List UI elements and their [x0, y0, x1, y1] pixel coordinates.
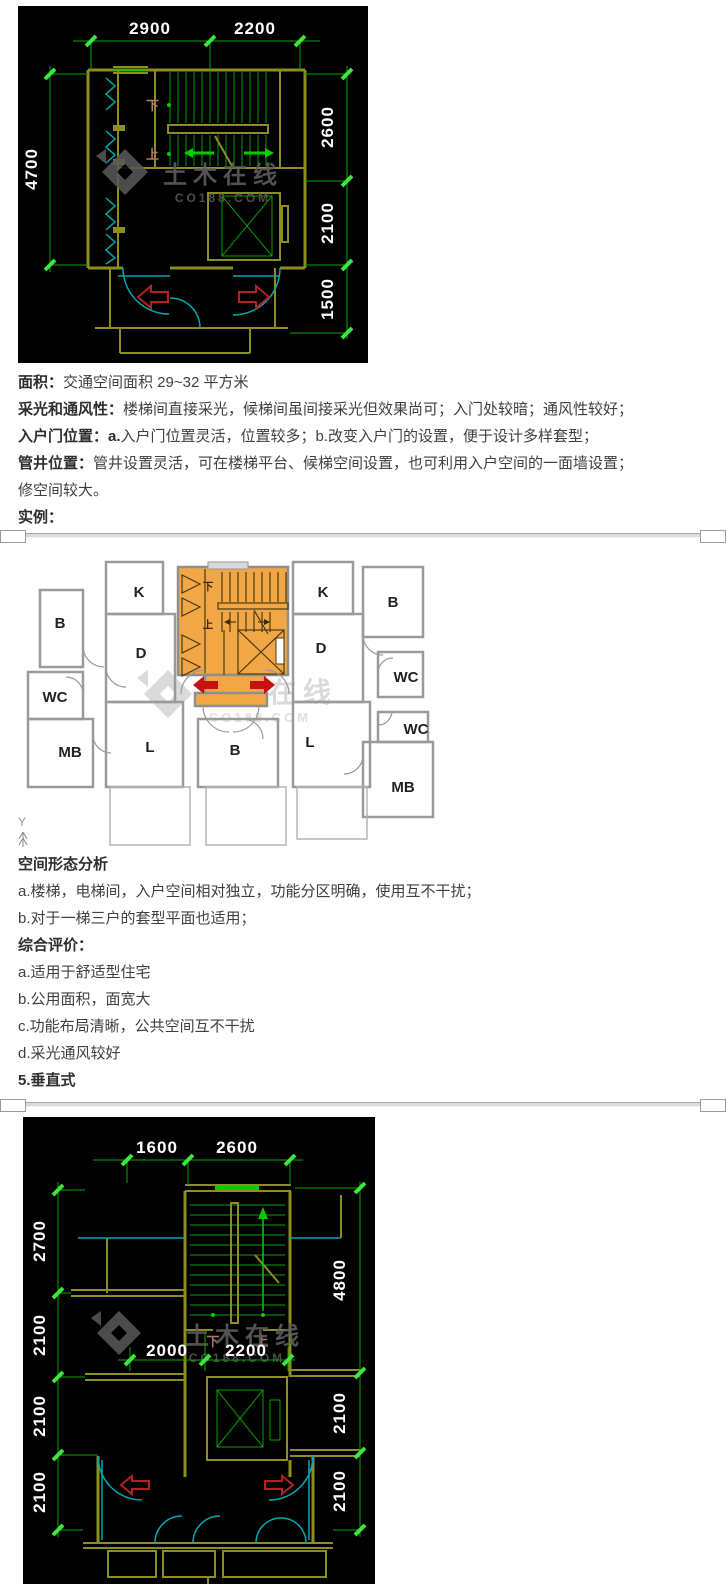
dim-label: 2200 [234, 19, 276, 38]
analysis-item: b.对于一梯三户的套型平面也适用； [18, 905, 720, 932]
dim-label: 2100 [30, 1471, 49, 1513]
evaluation-item: d.采光通风较好 [18, 1040, 720, 1067]
trait-line: 管井位置：管井设置灵活，可在楼梯平台、候梯空间设置，也可利用入户空间的一面墙设置… [18, 450, 720, 477]
dim-label: 2600 [216, 1138, 258, 1157]
divider [0, 529, 726, 542]
next-type-heading: 5.垂直式 [18, 1067, 720, 1094]
dim-label: 2100 [330, 1392, 349, 1434]
room-label: L [145, 739, 154, 756]
trait-text: 入户门位置灵活，位置较多；b.改变入户门的设置，便于设计多样套型； [121, 428, 599, 445]
room-label: WC [43, 689, 68, 706]
trait-line: 修空间较大。 [18, 477, 720, 504]
room-label: MB [58, 744, 81, 761]
axis-label: Y [18, 815, 26, 829]
watermark-domain: CO188.COM [175, 191, 271, 205]
evaluation-item: c.功能布局清晰，公共空间互不干扰 [18, 1013, 720, 1040]
dim-label: 2100 [30, 1314, 49, 1356]
dim-label: 4700 [22, 148, 41, 190]
room-label: B [55, 615, 66, 632]
trait-text: 楼梯间直接采光，候梯间虽间接采光但效果尚可；入门处较暗；通风性较好； [123, 401, 633, 418]
trait-line: 入户门位置：a.入户门位置灵活，位置较多；b.改变入户门的设置，便于设计多样套型… [18, 423, 720, 450]
stair-down-label: 下 [146, 98, 159, 113]
dim-label: 2600 [318, 106, 337, 148]
trait-line: 实例： [18, 504, 720, 531]
divider-handle-left [0, 1099, 26, 1112]
room-label: K [134, 584, 145, 601]
trait-label: 采光和通风性： [18, 401, 123, 418]
watermark-domain: CO188.COM [209, 710, 311, 725]
divider [0, 1098, 726, 1111]
trait-text: 修空间较大。 [18, 482, 108, 499]
analysis-section: 空间形态分析 a.楼梯，电梯间，入户空间相对独立，功能分区明确，使用互不干扰； … [18, 851, 720, 1094]
traits-section: 面积：交通空间面积 29~32 平方米 采光和通风性：楼梯间直接采光，候梯间虽间… [18, 369, 720, 531]
room-label: WC [394, 669, 419, 686]
stair-up-label: 上 [146, 147, 159, 162]
room-label: D [316, 640, 327, 657]
dim-label: 2000 [146, 1341, 188, 1360]
dim-label: 2100 [318, 202, 337, 244]
room-label: D [136, 645, 147, 662]
dim-label: 2200 [225, 1341, 267, 1360]
dim-label: 1500 [318, 278, 337, 320]
room-label: WC [404, 721, 429, 738]
trait-label: 面积： [18, 374, 63, 391]
evaluation-item: a.适用于舒适型住宅 [18, 959, 720, 986]
trait-line: 面积：交通空间面积 29~32 平方米 [18, 369, 720, 396]
dim-label: 1600 [136, 1138, 178, 1157]
dim-label: 2900 [129, 19, 171, 38]
room-label: L [305, 734, 314, 751]
room-label: B [388, 594, 399, 611]
example-floor-plan: 土木在线 CO188.COM 下 上 [10, 542, 482, 854]
divider-rule [0, 533, 726, 538]
axis-marker: Y [18, 815, 27, 847]
cad-plan-top: 下 上 土木在线 CO188.COM 2900 2200 [18, 6, 368, 363]
dim-label: 2100 [30, 1395, 49, 1437]
dim-label: 2700 [30, 1220, 49, 1262]
watermark-title: 土木在线 [163, 161, 283, 189]
trait-label: 入户门位置：a. [18, 428, 121, 445]
evaluation-heading: 综合评价： [18, 932, 720, 959]
trait-text: 管井设置灵活，可在楼梯平台、候梯空间设置，也可利用入户空间的一面墙设置； [93, 455, 633, 472]
trait-text: 交通空间面积 29~32 平方米 [63, 374, 248, 391]
next-type-number: 5. [18, 1072, 31, 1089]
divider-rule [0, 1102, 726, 1107]
evaluation-item: b.公用面积，面宽大 [18, 986, 720, 1013]
dim-label: 2100 [330, 1470, 349, 1512]
next-type-title: 垂直式 [31, 1072, 76, 1089]
trait-label: 实例： [18, 509, 63, 526]
dim-label: 4800 [330, 1259, 349, 1301]
cad-plan-bottom: 下 上 土木在线 CO188.COM 1600 2600 [23, 1117, 375, 1584]
divider-handle-right [700, 1099, 726, 1112]
analysis-heading: 空间形态分析 [18, 851, 720, 878]
trait-label: 管井位置： [18, 455, 93, 472]
room-label: B [230, 742, 241, 759]
room-label: K [318, 584, 329, 601]
room-label: MB [391, 779, 414, 796]
analysis-item: a.楼梯，电梯间，入户空间相对独立，功能分区明确，使用互不干扰； [18, 878, 720, 905]
divider-handle-right [700, 530, 726, 543]
trait-line: 采光和通风性：楼梯间直接采光，候梯间虽间接采光但效果尚可；入门处较暗；通风性较好… [18, 396, 720, 423]
